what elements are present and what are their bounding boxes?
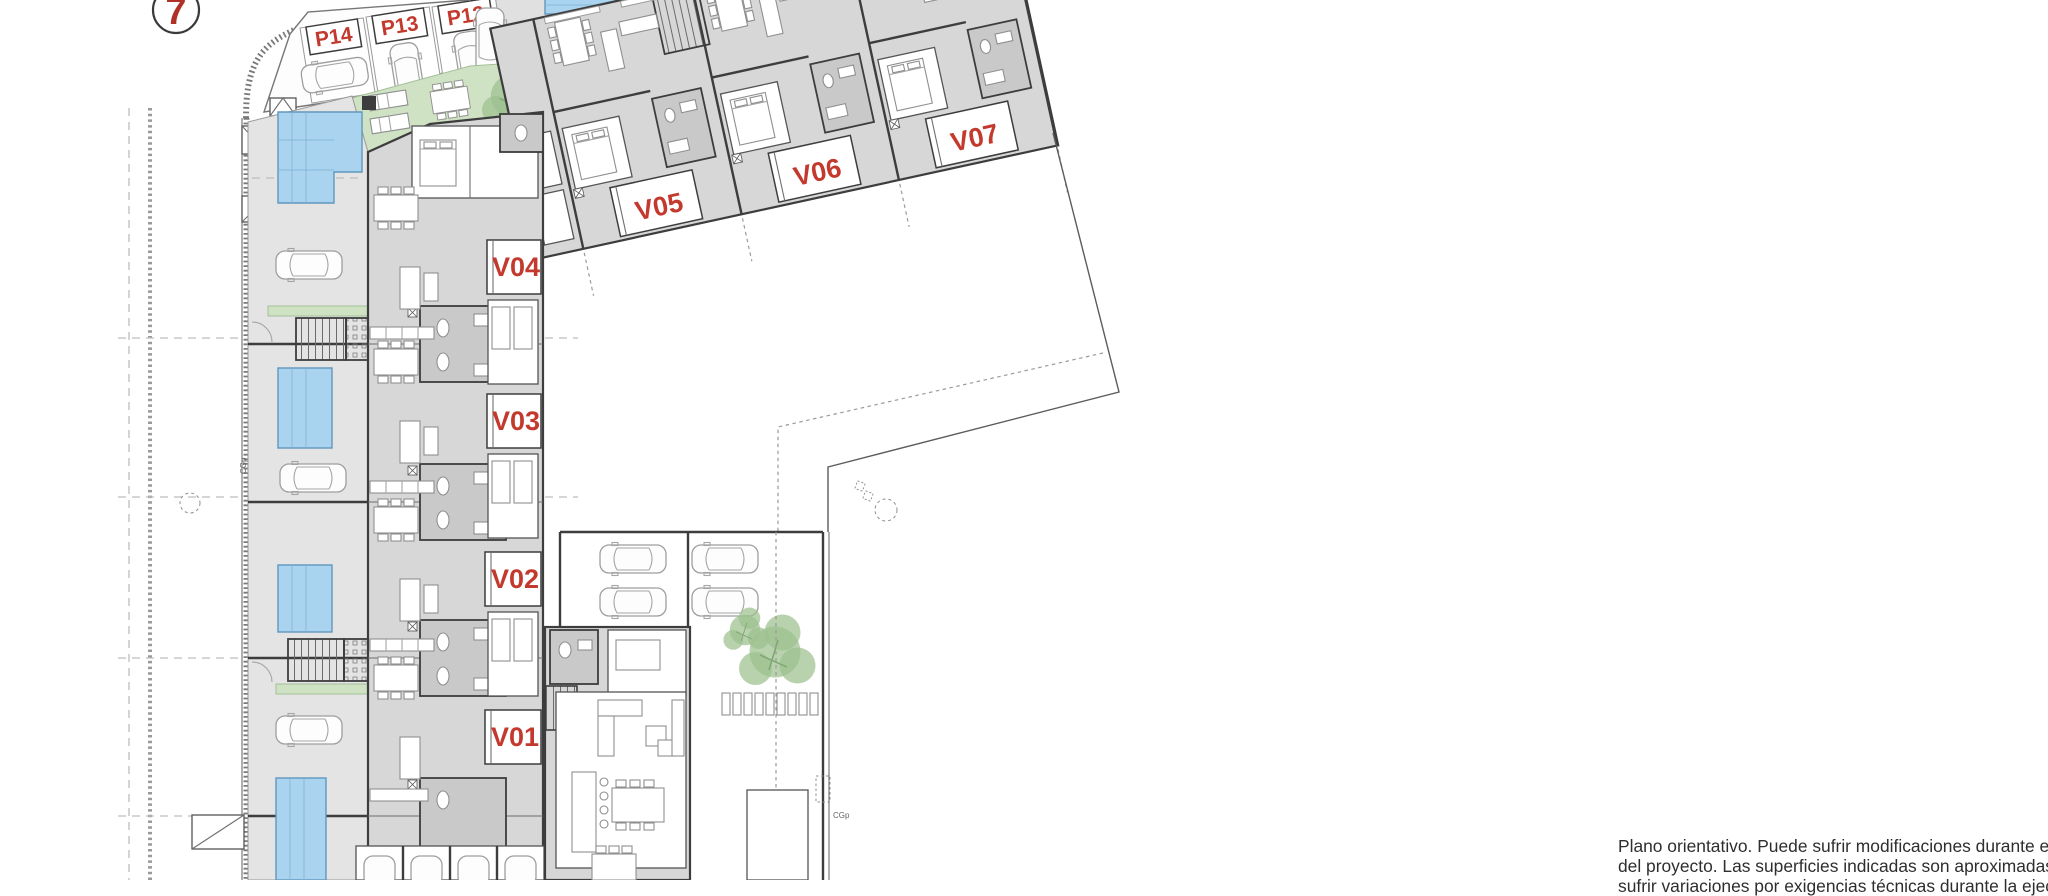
- unit-label: V02: [491, 564, 539, 594]
- left-building-column: V04 V03 V02 V01: [356, 96, 544, 880]
- hedge-strip: [276, 684, 370, 694]
- dining-table: [374, 187, 418, 229]
- survey-circle: [875, 499, 897, 521]
- unit-label: V01: [491, 722, 539, 752]
- dining-table: [592, 846, 636, 880]
- parking-bay-p14: P14: [294, 18, 375, 104]
- upper-building-row: V05 V06: [490, 0, 1068, 305]
- car: [276, 714, 342, 747]
- bbq-symbol: [362, 96, 376, 110]
- pool-outline: [747, 790, 808, 880]
- survey-mark: [855, 481, 873, 501]
- disclaimer-line: Plano orientativo. Puede sufrir modifica…: [1618, 836, 2048, 856]
- site-plan: CGp 7 P14 P13 P12: [0, 0, 2048, 880]
- dining-table: [547, 16, 597, 68]
- gate-symbol: [192, 815, 244, 849]
- disclaimer-line-clipped: sufrir variaciones por exigencias técnic…: [1618, 876, 2048, 896]
- pool-2: [278, 368, 332, 448]
- car: [600, 586, 666, 619]
- dining-table: [374, 499, 418, 541]
- pool-4: [276, 778, 326, 880]
- dining-table: [374, 657, 418, 699]
- utility-box-label: CGp: [239, 457, 248, 474]
- ground-floor-house: CGp: [545, 532, 850, 880]
- pergola-slats: [722, 693, 818, 715]
- dining-table: [374, 341, 418, 383]
- rear-patio: CGp: [722, 532, 850, 880]
- garage: [560, 532, 823, 627]
- plan-number-marker: 7: [153, 0, 199, 33]
- hedge-strip: [268, 306, 368, 316]
- manhole-circle: [180, 493, 200, 513]
- marker-number: 7: [165, 0, 186, 33]
- unit-label: V04: [492, 252, 540, 282]
- floor-plan-svg: CGp 7 P14 P13 P12: [0, 0, 2048, 880]
- car: [276, 249, 342, 282]
- road-markings: [118, 108, 244, 880]
- disclaimer-line: del proyecto. Las superficies indicadas …: [1618, 856, 2048, 876]
- car: [692, 543, 758, 576]
- pool-3: [278, 565, 332, 632]
- utility-box-label: CGp: [833, 811, 850, 820]
- garage-row: [356, 846, 544, 880]
- unit-label: V03: [492, 406, 540, 436]
- car: [280, 462, 346, 495]
- car: [600, 543, 666, 576]
- disclaimer-note: Plano orientativo. Puede sufrir modifica…: [1618, 836, 2048, 896]
